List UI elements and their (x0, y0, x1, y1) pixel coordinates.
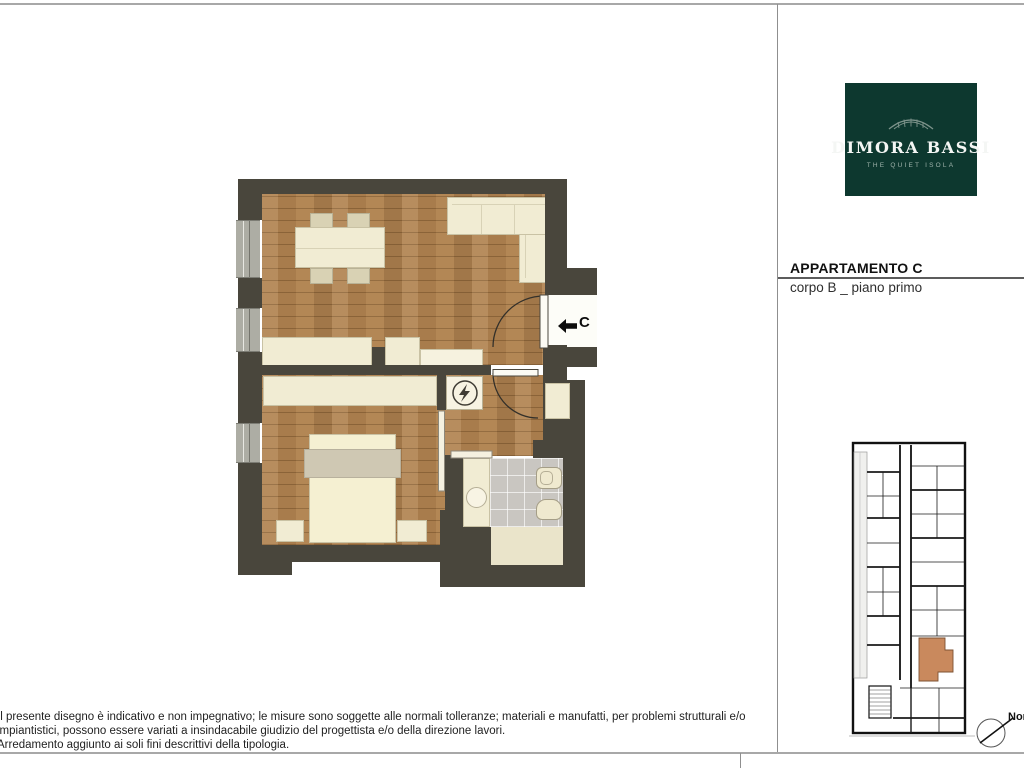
disclaimer-text: Il presente disegno è indicativo e non i… (0, 710, 772, 752)
brand-name: DIMORA BASSI (831, 138, 991, 157)
right-panel-divider (777, 4, 778, 753)
page-subtitle: corpo B _ piano primo (790, 280, 922, 295)
doors-and-symbols-layer (230, 170, 610, 600)
lightning-icon (453, 381, 477, 405)
building-key-plan (849, 440, 975, 740)
hall-door-leaf (493, 370, 538, 377)
disclaimer-line: Il presente disegno è indicativo e non i… (0, 710, 772, 724)
page-title: APPARTAMENTO C (790, 260, 923, 276)
disclaimer-line: Arredamento aggiunto ai soli fini descri… (0, 738, 772, 752)
title-underline (778, 277, 1024, 279)
bathroom-sliding-door (451, 451, 492, 458)
door-swing-arc (493, 373, 538, 418)
top-border-line (0, 3, 1024, 5)
door-swing-arc (493, 296, 544, 347)
brand-logo: DIMORA BASSI THE QUIET ISOLA (845, 83, 977, 196)
bedroom-sliding-door (439, 411, 445, 491)
awning-icon (885, 110, 937, 132)
floorplan-sheet: { "logo": { "brand": "DIMORA BASSI", "ta… (0, 0, 1024, 768)
arrow-left-icon (558, 319, 577, 333)
footer-cell-divider (740, 753, 741, 768)
brand-tagline: THE QUIET ISOLA (867, 162, 956, 169)
compass-label: Nord (1008, 711, 1024, 723)
disclaimer-line: impiantistici, possono essere variati a … (0, 724, 772, 738)
north-compass: Nord (962, 702, 1024, 758)
stairs (869, 686, 891, 718)
entrance-door-leaf (540, 295, 548, 348)
entrance-label: C (579, 314, 590, 331)
footer-border-line (0, 752, 1024, 754)
